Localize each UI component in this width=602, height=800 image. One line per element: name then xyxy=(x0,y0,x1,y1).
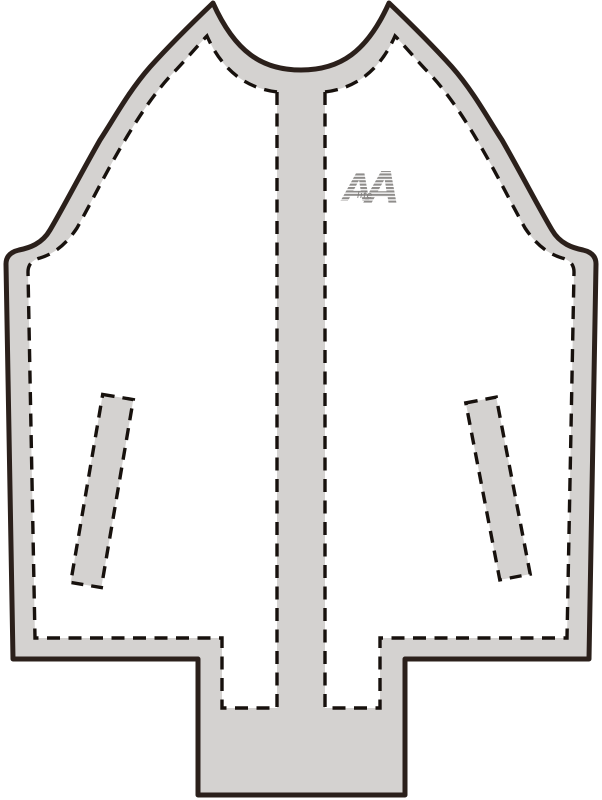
logo-letter-a-right: A xyxy=(363,163,400,214)
left-front-panel xyxy=(28,36,277,708)
logo-small-text: life xyxy=(357,191,373,201)
garment-flat-canvas: A A life xyxy=(0,0,602,800)
jacket-flat-svg: A A life xyxy=(0,0,602,800)
chest-logo: A A life xyxy=(340,163,400,214)
right-front-panel xyxy=(325,36,574,708)
